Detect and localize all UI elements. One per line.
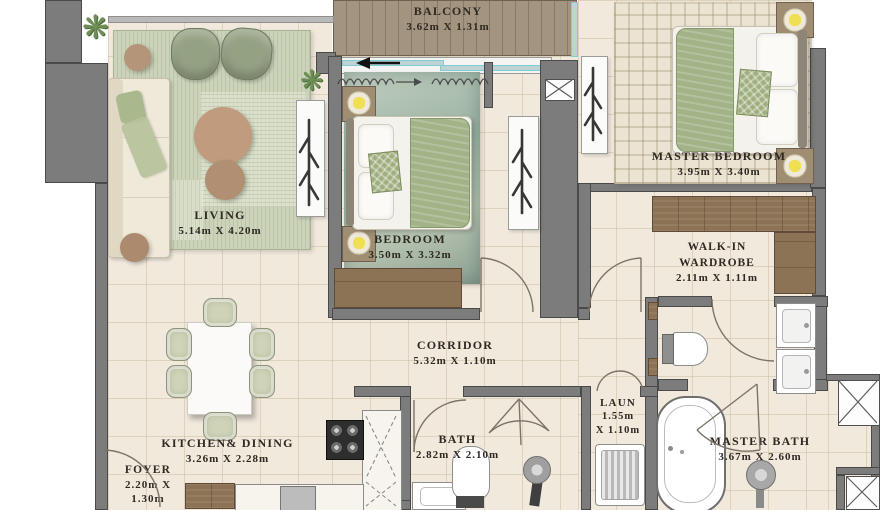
- kitchen-sink: [280, 486, 316, 510]
- wc-toilet-tank: [662, 334, 674, 364]
- stove: [326, 420, 364, 460]
- plant-icon: ❋: [300, 64, 323, 98]
- wall-segment: [658, 379, 688, 391]
- dining-chair: [249, 328, 275, 361]
- walkin-wardrobe-cabinet: [774, 232, 816, 294]
- dining-chair: [166, 328, 192, 361]
- washing-machine: [595, 444, 645, 506]
- vanity-sink: [776, 349, 816, 394]
- side-table: [124, 44, 151, 71]
- service-shaft: [545, 79, 575, 101]
- lamp-icon: [346, 90, 372, 116]
- room-label-laundry: LAUN 1.55m X 1.10m: [590, 396, 646, 438]
- room-label-master-bath: MASTER BATH 3.67m X 2.60m: [690, 433, 830, 465]
- bedroom-wardrobe: [334, 268, 462, 308]
- master-bed-cushion: [736, 69, 772, 118]
- dining-chair: [166, 365, 192, 398]
- shower-tray: [838, 380, 880, 426]
- walkin-wardrobe-cabinet: [652, 196, 816, 232]
- wall-segment: [354, 386, 411, 397]
- stove-burner: [331, 425, 342, 436]
- plant-icon: ❋: [82, 8, 109, 46]
- bed-cushion: [368, 151, 402, 194]
- floor-plan: ❋ ❋: [0, 0, 880, 510]
- wall-segment: [658, 296, 712, 307]
- stove-burner: [347, 442, 358, 453]
- wall-segment: [836, 467, 880, 475]
- room-label-walkin-wardrobe: WALK-IN WARDROBE 2.11m X 1.11m: [660, 240, 774, 286]
- room-label-living: LIVING 5.14m X 4.20m: [150, 207, 290, 239]
- stove-burner: [347, 425, 358, 436]
- wall-segment: [578, 183, 591, 308]
- console-table: [296, 100, 325, 217]
- towel-rack: [648, 358, 658, 376]
- shower-tray: [846, 476, 880, 510]
- room-label-foyer: FOYER 2.20m X 1.30m: [106, 463, 190, 507]
- wc-toilet: [672, 332, 708, 366]
- stove-burner: [331, 442, 342, 453]
- console-table: [508, 116, 539, 230]
- wall-segment: [463, 386, 581, 397]
- window-glass: [571, 2, 578, 57]
- wall-segment: [578, 308, 590, 320]
- shower-head-icon: [523, 456, 551, 484]
- wall-segment: [332, 308, 480, 320]
- wall-segment: [45, 0, 82, 63]
- room-label-bath: BATH 2.82m X 2.10m: [400, 431, 515, 463]
- master-bed-headboard: [798, 30, 807, 148]
- balcony-glass-panel: [342, 60, 444, 66]
- wall-segment: [95, 183, 108, 510]
- wall-segment: [836, 475, 845, 510]
- room-label-balcony: BALCONY 3.62m X 1.31m: [363, 3, 533, 35]
- coffee-table-large: [194, 107, 252, 165]
- wall-segment: [108, 16, 334, 23]
- armchair: [171, 28, 220, 80]
- bed-headboard: [346, 118, 354, 226]
- towel-rack: [648, 302, 658, 320]
- console-table: [581, 56, 608, 154]
- room-label-corridor: CORRIDOR 5.32m X 1.10m: [385, 337, 525, 369]
- dining-chair: [249, 365, 275, 398]
- coffee-table-small: [205, 160, 245, 200]
- wall-segment: [590, 183, 812, 192]
- vanity-sink: [776, 303, 816, 348]
- room-label-master-bedroom: MASTER BEDROOM 3.95m X 3.40m: [640, 148, 798, 180]
- wall-segment: [45, 63, 108, 183]
- round-stool: [120, 233, 149, 262]
- entry-door: [185, 483, 235, 509]
- toilet-tank: [456, 496, 484, 508]
- master-bed-blanket: [676, 28, 734, 152]
- wall-segment: [484, 62, 493, 108]
- room-label-bedroom: BEDROOM 3.50m X 3.32m: [345, 231, 475, 263]
- bed-blanket: [410, 118, 470, 228]
- dining-table: [187, 322, 252, 415]
- kitchen-counter: [362, 410, 402, 510]
- dining-chair: [203, 298, 237, 327]
